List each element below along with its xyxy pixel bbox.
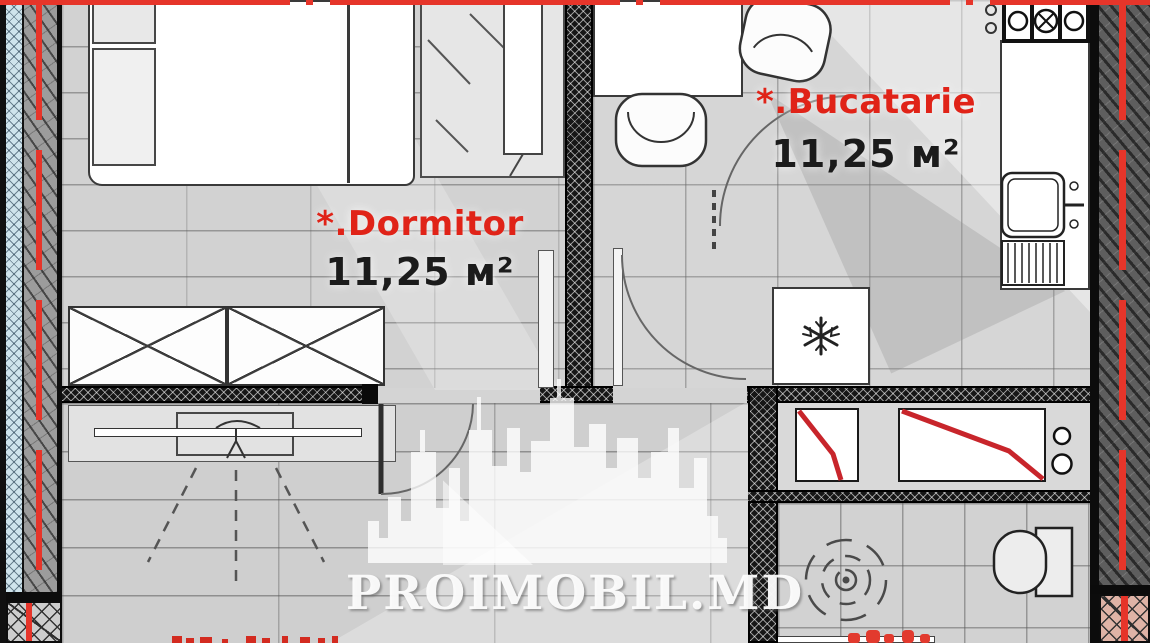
cropped-label-marks bbox=[848, 630, 930, 643]
stove-knobs bbox=[986, 5, 996, 33]
tv-arrow bbox=[216, 421, 260, 458]
kitchen-door bbox=[622, 255, 746, 379]
vent-circles bbox=[1053, 428, 1072, 474]
dish-drainer bbox=[1002, 241, 1064, 285]
stove-icon bbox=[1004, 1, 1088, 41]
snowflake-icon bbox=[803, 318, 839, 354]
cropped-label-marks bbox=[172, 636, 338, 643]
sink-icon bbox=[1002, 173, 1084, 237]
chair bbox=[616, 94, 706, 166]
watermark-skyline bbox=[368, 379, 727, 563]
closet-details bbox=[428, 4, 542, 176]
watermark-text: PROIMOBIL.MD bbox=[0, 566, 1150, 621]
chair bbox=[735, 0, 835, 86]
vent-duct-lines bbox=[799, 411, 1043, 480]
room-label-dormitor: *.Dormitor bbox=[290, 204, 550, 244]
room-label-bucatarie: *.Bucatarie bbox=[736, 82, 996, 122]
room-area-dormitor: 11,25 м² bbox=[290, 250, 550, 294]
floor-plan-canvas: *.Dormitor 11,25 м² *.Bucatarie 11,25 м²… bbox=[0, 0, 1150, 643]
room-area-bucatarie: 11,25 м² bbox=[746, 132, 986, 176]
section-line bbox=[0, 0, 1150, 5]
